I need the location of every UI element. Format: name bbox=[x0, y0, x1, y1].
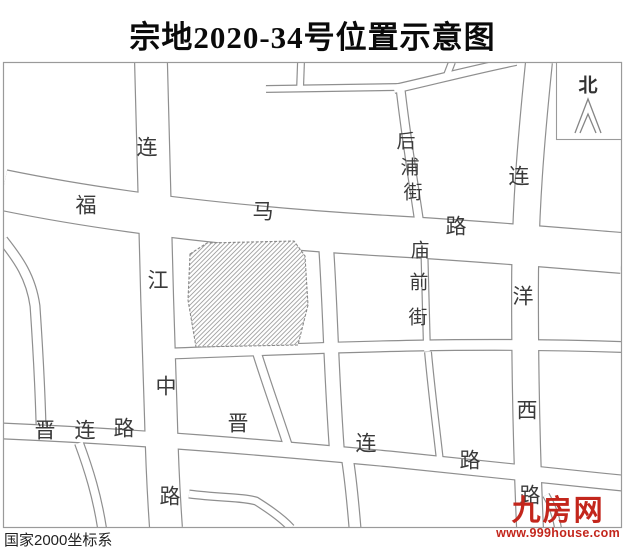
road-label-char: 路 bbox=[114, 419, 135, 440]
road-label-char: 路 bbox=[160, 487, 181, 508]
road-label-char: 浦 bbox=[400, 159, 419, 178]
road-label-char: 晋 bbox=[35, 421, 56, 442]
logo-text: 九房网 bbox=[496, 496, 620, 526]
road-label-char: 连 bbox=[75, 421, 96, 442]
road-label-char: 晋 bbox=[228, 414, 249, 435]
road-label-char: 洋 bbox=[513, 287, 534, 308]
road-label-char: 庙 bbox=[410, 242, 429, 261]
road-label-char: 连 bbox=[509, 167, 530, 188]
road-label-char: 福 bbox=[76, 196, 97, 217]
north-label: 北 bbox=[578, 71, 597, 98]
coordinate-system-label: 国家2000坐标系 bbox=[4, 529, 112, 550]
road-label-char: 江 bbox=[148, 271, 169, 292]
road-label-char: 街 bbox=[408, 309, 427, 328]
road-label-char: 路 bbox=[460, 451, 481, 472]
road-label-char: 中 bbox=[156, 377, 177, 398]
road-label-char: 西 bbox=[517, 401, 538, 422]
parcel-hatched bbox=[188, 241, 308, 347]
road-label-char: 马 bbox=[253, 202, 274, 223]
road-label-char: 路 bbox=[446, 217, 467, 238]
website-url: www.999house.com bbox=[496, 526, 620, 540]
road-label-char: 后 bbox=[396, 133, 415, 152]
road-label-char: 连 bbox=[356, 434, 377, 455]
parcel-location-map-page: 宗地2020-34号位置示意图 连 江 中 路 福 马 路 后 浦 街 庙 前 … bbox=[0, 0, 625, 552]
road-label-char: 前 bbox=[409, 274, 428, 293]
road-label-char: 连 bbox=[137, 138, 158, 159]
road-label-char: 街 bbox=[403, 184, 422, 203]
watermark-logo: 九房网 www.999house.com bbox=[496, 496, 620, 540]
road-map-svg bbox=[0, 0, 625, 552]
